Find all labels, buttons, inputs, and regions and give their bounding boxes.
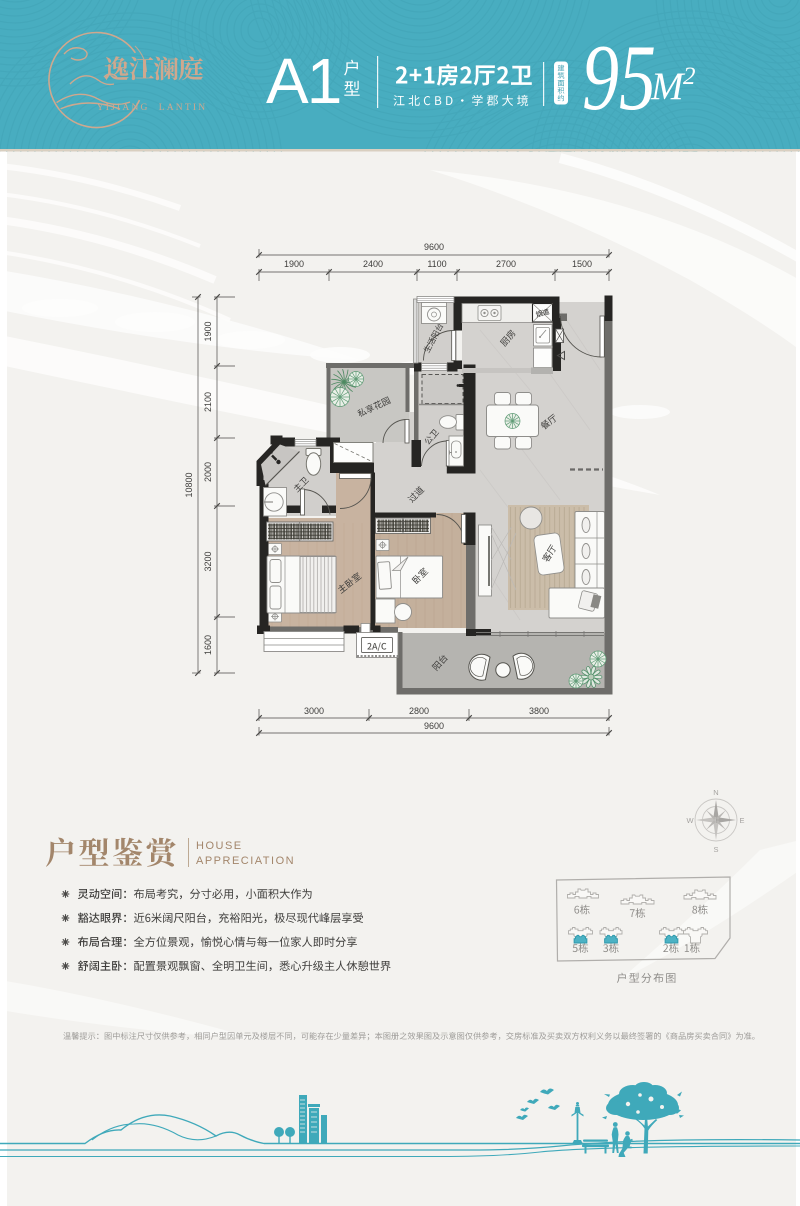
svg-text:E: E [739, 816, 744, 825]
svg-text:N: N [713, 788, 718, 797]
svg-text:S: S [713, 845, 718, 854]
svg-text:W: W [686, 816, 694, 825]
